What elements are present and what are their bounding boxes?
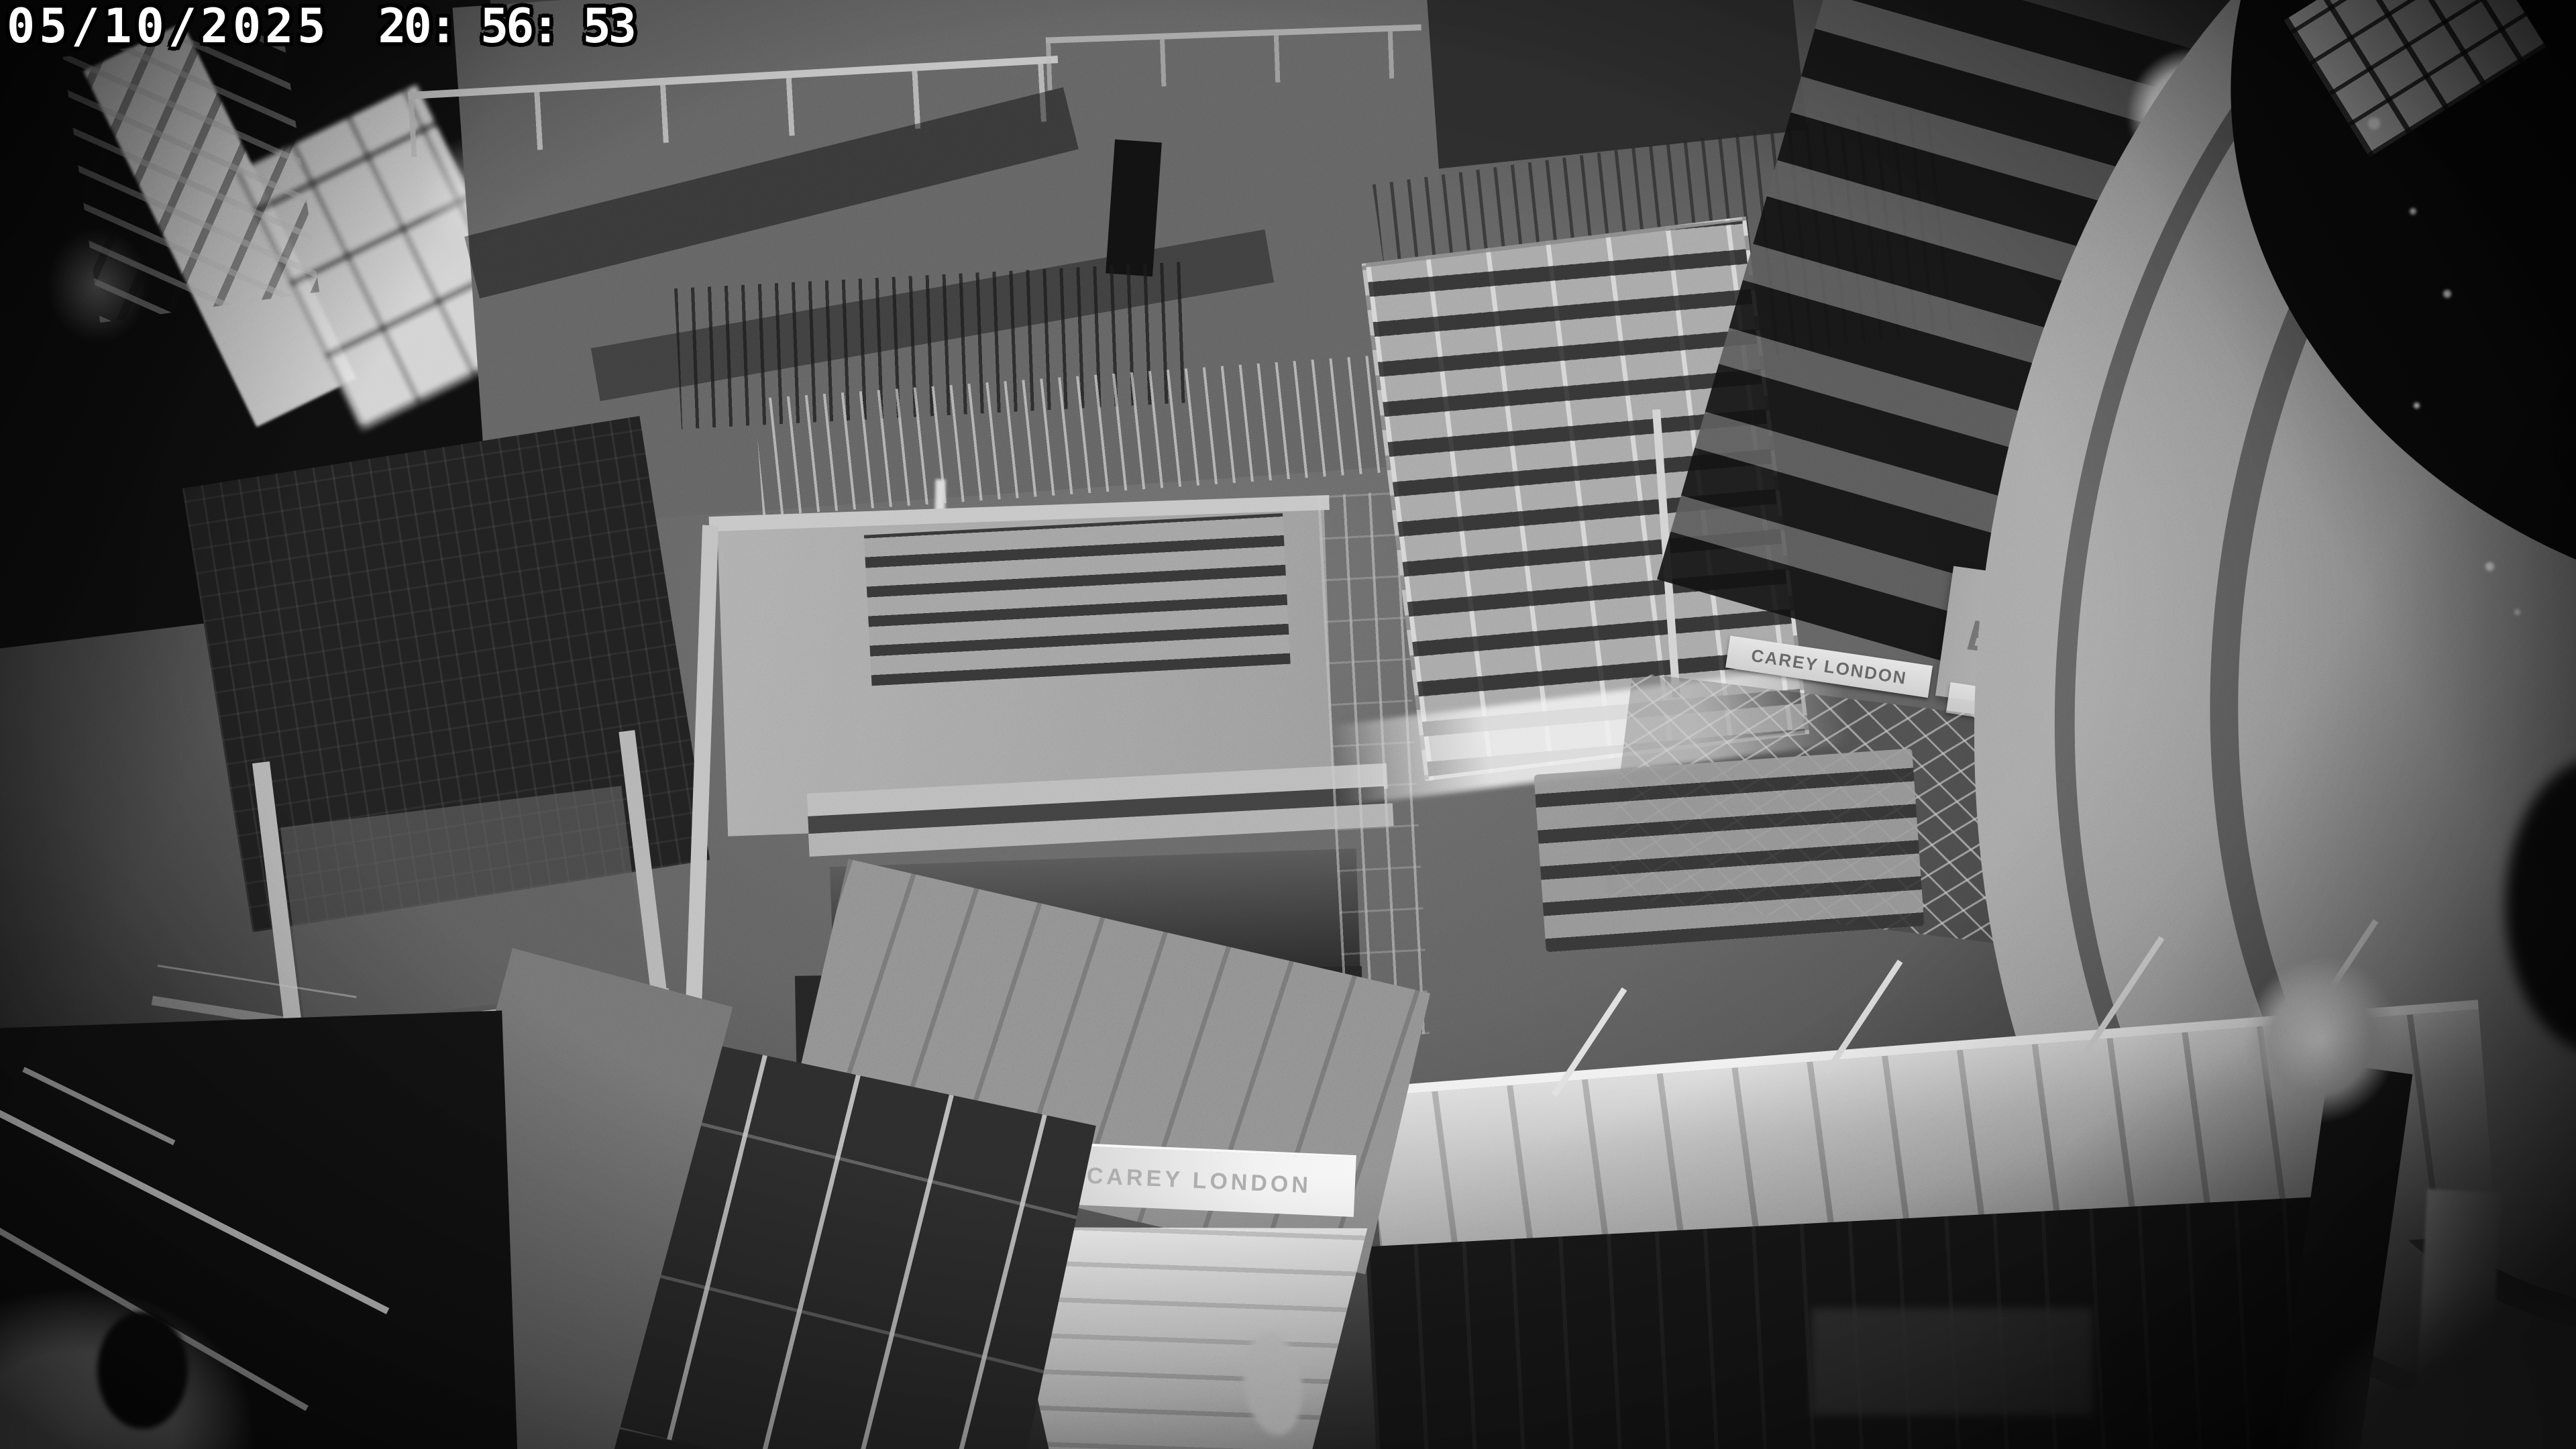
material-stack xyxy=(1534,749,1924,953)
street-light xyxy=(2414,402,2420,409)
street-light xyxy=(2485,562,2494,571)
timestamp-time: 20: 56: 53 xyxy=(378,3,633,50)
timber-pallet xyxy=(864,513,1291,686)
street-light xyxy=(2443,290,2451,298)
street-light xyxy=(2368,117,2380,129)
stored-pallets xyxy=(1811,1308,2093,1415)
dark-figure xyxy=(97,1311,188,1429)
timestamp-date: 05/10/2025 xyxy=(7,3,329,50)
timestamp-overlay: 05/10/2025 20: 56: 53 xyxy=(7,3,634,50)
cctv-still-frame: EY LONDON CAI CAREY LONDON CARE CAREY LO… xyxy=(0,0,2576,1449)
walkway-banner-text: CAREY LONDON xyxy=(1086,1163,1312,1199)
street-light xyxy=(2410,208,2416,215)
street-light xyxy=(2514,609,2520,615)
signal-flag xyxy=(1106,140,1162,276)
stair-tower xyxy=(63,26,319,323)
